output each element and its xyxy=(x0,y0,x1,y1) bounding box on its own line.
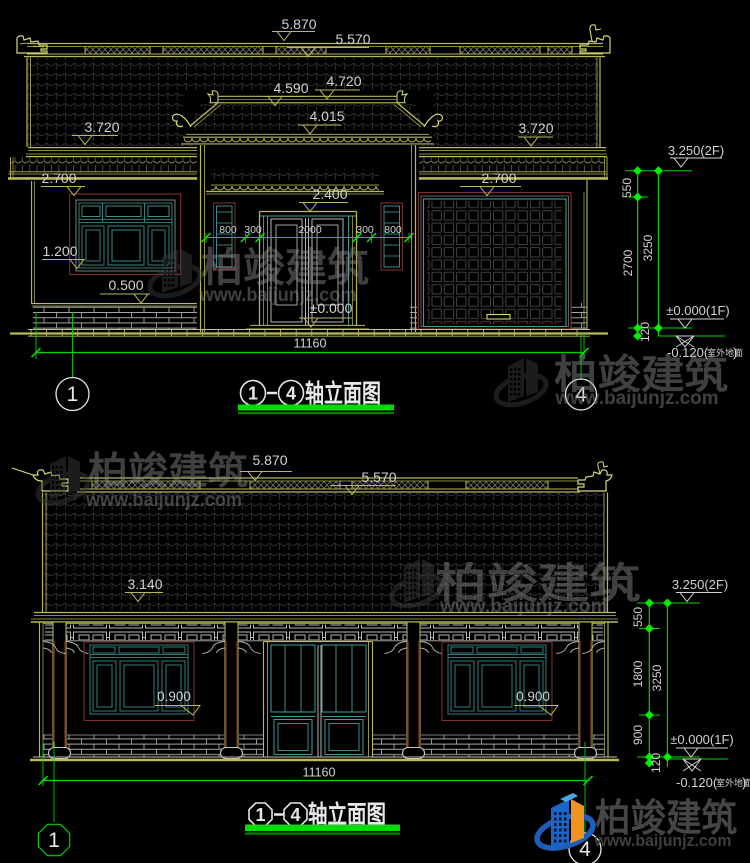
svg-text:1: 1 xyxy=(255,805,265,825)
svg-text:3.140: 3.140 xyxy=(127,576,162,592)
svg-text:www.baijunjz.com: www.baijunjz.com xyxy=(594,831,732,850)
svg-text:1: 1 xyxy=(248,384,258,404)
svg-text:3.250(2F): 3.250(2F) xyxy=(668,143,724,158)
svg-text:±0.000(1F): ±0.000(1F) xyxy=(670,732,734,747)
svg-text:4.015: 4.015 xyxy=(309,108,344,124)
svg-text:550: 550 xyxy=(620,178,634,198)
svg-text:2000: 2000 xyxy=(298,224,322,236)
svg-text:4.720: 4.720 xyxy=(326,73,361,89)
svg-text:300: 300 xyxy=(244,224,262,236)
svg-text:120: 120 xyxy=(649,753,663,773)
svg-text:2700: 2700 xyxy=(621,249,635,276)
svg-text:2.400: 2.400 xyxy=(312,186,347,202)
svg-text:www.baijunjz.com: www.baijunjz.com xyxy=(439,596,608,617)
svg-text:3.250(2F): 3.250(2F) xyxy=(672,577,728,592)
svg-text:1800: 1800 xyxy=(631,660,645,687)
svg-text:5.870: 5.870 xyxy=(252,452,287,468)
svg-text:www.baijunjz.com: www.baijunjz.com xyxy=(85,490,242,511)
svg-text:800: 800 xyxy=(219,224,237,236)
svg-text:2.700: 2.700 xyxy=(481,170,516,186)
svg-text:柏竣建筑: 柏竣建筑 xyxy=(88,451,248,493)
svg-text:800: 800 xyxy=(384,224,402,236)
svg-text:www.baijunjz.com: www.baijunjz.com xyxy=(555,388,719,409)
svg-text:4: 4 xyxy=(286,384,296,404)
svg-text:3.720: 3.720 xyxy=(84,119,119,135)
svg-text:0.900: 0.900 xyxy=(157,689,191,704)
svg-text:900: 900 xyxy=(631,725,645,745)
svg-text:3250: 3250 xyxy=(650,664,664,691)
svg-text:0.500: 0.500 xyxy=(108,277,143,293)
svg-text:5.870: 5.870 xyxy=(281,16,316,32)
svg-text:www.baijunjz.com: www.baijunjz.com xyxy=(199,285,357,306)
svg-text:): ) xyxy=(733,345,737,360)
svg-text:): ) xyxy=(742,775,746,790)
svg-text:1.200: 1.200 xyxy=(42,243,77,259)
svg-text:1: 1 xyxy=(67,383,79,406)
svg-text:3.720: 3.720 xyxy=(518,120,553,136)
svg-text:11160: 11160 xyxy=(294,337,327,351)
svg-text:120: 120 xyxy=(638,322,652,342)
svg-text:550: 550 xyxy=(631,607,645,627)
svg-text:±0.000(1F): ±0.000(1F) xyxy=(666,303,730,318)
svg-text:2.700: 2.700 xyxy=(41,170,76,186)
svg-text:5.570: 5.570 xyxy=(361,469,396,485)
svg-text:4: 4 xyxy=(290,805,300,825)
svg-text:0.900: 0.900 xyxy=(516,689,550,704)
svg-text:5.570: 5.570 xyxy=(335,31,370,47)
svg-text:300: 300 xyxy=(356,224,374,236)
svg-text:柏竣建筑: 柏竣建筑 xyxy=(201,246,369,290)
svg-text:1: 1 xyxy=(48,829,60,852)
svg-text:3250: 3250 xyxy=(641,234,655,261)
svg-text:轴立面图: 轴立面图 xyxy=(305,379,381,408)
svg-text:-0.120(: -0.120( xyxy=(676,775,718,790)
svg-text:11160: 11160 xyxy=(303,766,336,780)
svg-text:4.590: 4.590 xyxy=(273,80,308,96)
